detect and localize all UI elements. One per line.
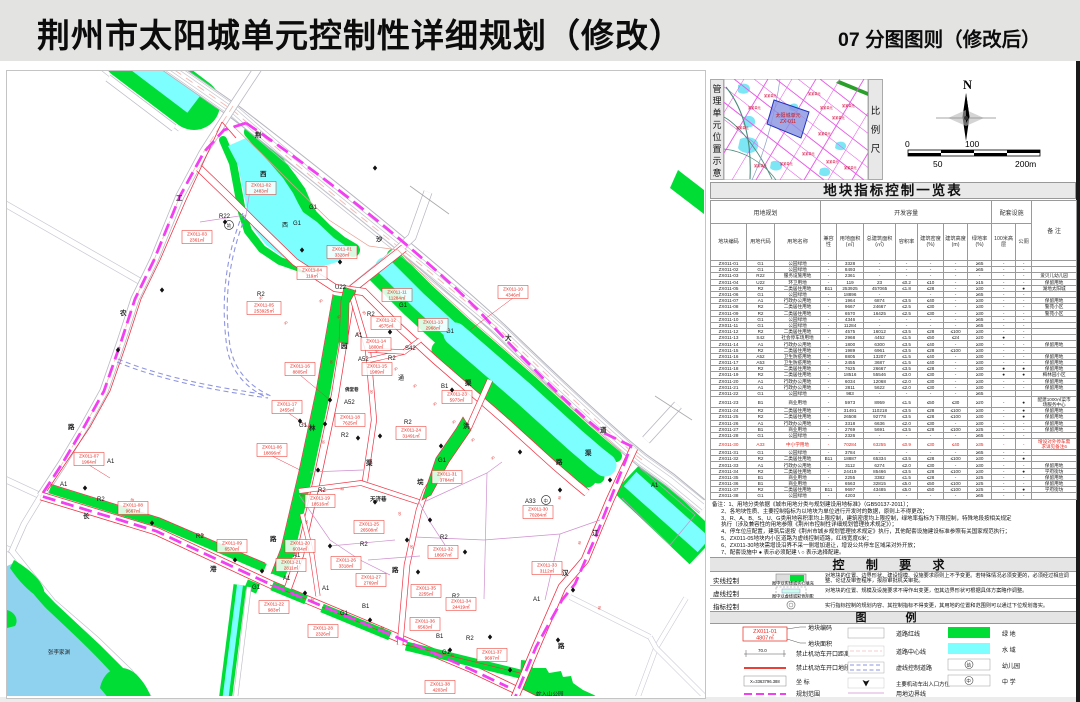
svg-text:9667㎡: 9667㎡	[126, 508, 141, 514]
svg-text:4346㎡: 4346㎡	[506, 292, 521, 298]
svg-text:26508㎡: 26508㎡	[360, 527, 378, 533]
svg-text:A1: A1	[107, 459, 115, 465]
svg-text:1800㎡: 1800㎡	[369, 344, 384, 350]
svg-text:ZX011-09: ZX011-09	[222, 540, 242, 545]
svg-text:R22: R22	[219, 214, 231, 220]
svg-text:R2: R2	[466, 636, 474, 642]
svg-text:4575㎡: 4575㎡	[379, 323, 394, 329]
svg-text:某某单元: 某某单元	[820, 105, 834, 110]
svg-text:虚线控制道路: 虚线控制道路	[896, 664, 932, 672]
svg-text:2326㎡: 2326㎡	[316, 631, 331, 637]
svg-text:ZX011-36: ZX011-36	[415, 618, 435, 623]
svg-text:30: 30	[470, 437, 476, 443]
svg-text:G1: G1	[340, 611, 349, 617]
svg-text:道: 道	[600, 425, 607, 434]
svg-text:ZX011-38: ZX011-38	[430, 681, 450, 686]
svg-text:ZX011-05: ZX011-05	[254, 302, 274, 307]
svg-text:ZX011-13: ZX011-13	[423, 319, 443, 324]
svg-text:ZX011-25: ZX011-25	[359, 521, 379, 526]
svg-text:30: 30	[321, 440, 325, 444]
svg-text:R2: R2	[196, 534, 204, 540]
svg-text:11284㎡: 11284㎡	[388, 295, 405, 301]
svg-text:ZX011-17: ZX011-17	[277, 401, 297, 406]
svg-text:ZX011-06: ZX011-06	[262, 444, 282, 449]
svg-text:A52: A52	[344, 400, 355, 406]
svg-text:ZX011-01: ZX011-01	[332, 246, 352, 251]
svg-text:中: 中	[966, 678, 970, 685]
svg-text:2811㎡: 2811㎡	[284, 565, 299, 571]
svg-text:30: 30	[412, 383, 418, 389]
svg-text:70284㎡: 70284㎡	[529, 512, 547, 518]
svg-text:18896㎡: 18896㎡	[263, 450, 281, 456]
svg-text:ZX011-34: ZX011-34	[451, 598, 471, 603]
svg-text:主要机动车出入口方位: 主要机动车出入口方位	[896, 680, 951, 688]
svg-text:ZX011-18: ZX011-18	[340, 414, 360, 419]
svg-text:地块编码: 地块编码	[808, 624, 832, 632]
svg-text:禁止机动车开口地段: 禁止机动车开口地段	[796, 664, 850, 672]
svg-text:长: 长	[83, 511, 90, 520]
svg-text:G1: G1	[252, 585, 261, 591]
svg-text:路: 路	[270, 534, 277, 543]
svg-text:中 学: 中 学	[1002, 678, 1016, 686]
svg-text:用地边界线: 用地边界线	[896, 690, 926, 697]
svg-text:路: 路	[392, 565, 399, 574]
svg-text:渠: 渠	[585, 448, 592, 457]
svg-text:幼: 幼	[227, 222, 232, 229]
svg-text:某某单元: 某某单元	[780, 161, 794, 166]
svg-text:道路红线: 道路红线	[896, 630, 920, 638]
svg-text:西: 西	[260, 170, 267, 178]
svg-text:某某单元: 某某单元	[842, 103, 856, 108]
svg-text:G1: G1	[299, 423, 308, 429]
svg-text:ZX011-23: ZX011-23	[447, 391, 467, 396]
svg-text:渠: 渠	[465, 378, 472, 387]
svg-text:大: 大	[505, 333, 512, 342]
svg-text:ZX011-11: ZX011-11	[387, 289, 407, 294]
svg-text:B1: B1	[362, 604, 370, 610]
svg-text:200m: 200m	[1015, 159, 1036, 169]
svg-text:ZX011-33: ZX011-33	[537, 562, 557, 567]
svg-text:某某单元: 某某单元	[808, 91, 822, 96]
svg-text:道路中心线: 道路中心线	[896, 648, 926, 656]
svg-text:ZX011-35: ZX011-35	[416, 585, 436, 590]
svg-text:0: 0	[905, 139, 910, 149]
svg-text:30: 30	[361, 310, 367, 316]
svg-text:荆: 荆	[255, 130, 262, 139]
svg-text:2361㎡: 2361㎡	[190, 237, 205, 243]
svg-text:6563㎡: 6563㎡	[418, 624, 433, 630]
svg-text:某某单元: 某某单元	[754, 163, 768, 168]
svg-text:U22: U22	[335, 285, 347, 291]
svg-text:禁止机动车开口距离: 禁止机动车开口距离	[796, 650, 850, 658]
svg-text:园: 园	[341, 341, 348, 350]
svg-text:渠: 渠	[366, 458, 373, 467]
svg-text:6570㎡: 6570㎡	[225, 546, 240, 552]
svg-text:G1: G1	[293, 221, 302, 227]
svg-text:A1: A1	[322, 586, 330, 592]
svg-text:3112㎡: 3112㎡	[540, 568, 555, 574]
svg-text:天济巷: 天济巷	[370, 495, 387, 503]
svg-text:30: 30	[318, 298, 324, 304]
svg-text:N: N	[963, 79, 972, 92]
svg-text:某某单元: 某某单元	[826, 159, 840, 164]
svg-text:ZX011-15: ZX011-15	[367, 363, 387, 368]
svg-text:ZX011-10: ZX011-10	[503, 286, 523, 291]
svg-text:G1: G1	[309, 205, 318, 211]
svg-text:3328㎡: 3328㎡	[335, 252, 350, 258]
svg-text:50: 50	[933, 159, 943, 169]
svg-text:林: 林	[309, 423, 316, 432]
svg-text:中: 中	[544, 497, 549, 504]
svg-text:30: 30	[577, 540, 582, 545]
svg-text:幼: 幼	[967, 662, 972, 669]
svg-text:某某单元: 某某单元	[802, 151, 816, 156]
svg-text:30: 30	[393, 366, 399, 372]
svg-text:8805㎡: 8805㎡	[293, 369, 308, 375]
svg-text:30: 30	[397, 511, 402, 516]
svg-text:某某单元: 某某单元	[748, 105, 762, 110]
svg-text:30: 30	[329, 360, 333, 364]
svg-text:ZX011-32: ZX011-32	[433, 546, 453, 551]
svg-text:佛堂巷: 佛堂巷	[344, 386, 359, 393]
svg-text:70.0: 70.0	[758, 648, 767, 653]
svg-text:R2: R2	[388, 356, 396, 362]
svg-text:30: 30	[340, 487, 344, 491]
svg-text:坐 标: 坐 标	[796, 678, 810, 686]
svg-text:ZX011-31: ZX011-31	[437, 471, 457, 476]
svg-text:西: 西	[282, 222, 288, 229]
svg-text:A33: A33	[525, 499, 536, 505]
svg-text:绿 地: 绿 地	[1002, 630, 1016, 638]
svg-text:ZX011-03: ZX011-03	[187, 231, 207, 236]
svg-text:沙: 沙	[376, 235, 383, 243]
svg-text:3318㎡: 3318㎡	[339, 563, 354, 569]
svg-text:某某单元: 某某单元	[764, 93, 778, 98]
svg-text:R2: R2	[341, 433, 349, 439]
svg-text:ZX011-07: ZX011-07	[79, 453, 99, 458]
svg-text:ZX011-01: ZX011-01	[753, 629, 777, 635]
svg-text:31491㎡: 31491㎡	[402, 433, 420, 439]
svg-text:路: 路	[556, 457, 563, 466]
svg-text:港: 港	[210, 564, 217, 573]
svg-text:24419㎡: 24419㎡	[452, 604, 470, 610]
svg-text:某某单元: 某某单元	[832, 115, 846, 120]
svg-text:2769㎡: 2769㎡	[364, 580, 379, 586]
svg-text:某某单元: 某某单元	[736, 125, 750, 130]
svg-text:地块面积: 地块面积	[808, 640, 832, 648]
svg-text:B1: B1	[441, 384, 449, 390]
svg-text:ZX011-19: ZX011-19	[310, 495, 330, 500]
svg-text:G1: G1	[399, 303, 408, 309]
svg-text:1964㎡: 1964㎡	[82, 459, 97, 465]
svg-text:2255㎡: 2255㎡	[419, 591, 434, 597]
svg-text:30: 30	[283, 320, 289, 326]
svg-text:洪: 洪	[463, 421, 470, 430]
svg-text:张李家渊: 张李家渊	[48, 648, 71, 656]
svg-text:ZX011-04: ZX011-04	[302, 267, 322, 272]
svg-text:工: 工	[176, 194, 183, 202]
svg-text:ZX011-22: ZX011-22	[264, 601, 284, 606]
svg-text:119㎡: 119㎡	[306, 273, 318, 279]
svg-text:ZX011-30: ZX011-30	[528, 506, 548, 511]
svg-text:ZX011-12: ZX011-12	[376, 317, 396, 322]
svg-text:A52: A52	[358, 357, 369, 363]
svg-text:ZX011-21: ZX011-21	[281, 559, 301, 564]
svg-text:江: 江	[592, 528, 599, 537]
svg-text:ZX-011: ZX-011	[780, 119, 796, 125]
svg-text:太阳城单元: 太阳城单元	[775, 112, 800, 119]
svg-text:R2: R2	[404, 420, 412, 426]
svg-text:垸: 垸	[417, 477, 424, 486]
svg-text:A1: A1	[533, 597, 541, 603]
svg-text:水 域: 水 域	[1002, 646, 1016, 654]
svg-text:3784㎡: 3784㎡	[440, 477, 455, 483]
svg-text:30: 30	[432, 401, 438, 407]
svg-text:18516㎡: 18516㎡	[311, 501, 329, 507]
svg-text:ZX011-26: ZX011-26	[336, 557, 356, 562]
svg-text:2455㎡: 2455㎡	[280, 407, 295, 413]
svg-text:X=3363796.388: X=3363796.388	[750, 679, 780, 684]
svg-text:ZX011-20: ZX011-20	[290, 540, 310, 545]
svg-text:汉: 汉	[562, 568, 569, 577]
svg-text:30: 30	[451, 419, 457, 425]
svg-text:G1: G1	[438, 458, 447, 464]
svg-text:B1: B1	[436, 634, 444, 640]
svg-text:2968㎡: 2968㎡	[426, 325, 441, 331]
svg-text:7625㎡: 7625㎡	[343, 420, 358, 426]
svg-text:ZX011-02: ZX011-02	[251, 182, 271, 187]
svg-text:R2: R2	[97, 497, 105, 503]
svg-text:1989㎡: 1989㎡	[370, 369, 385, 375]
svg-text:ZX011-24: ZX011-24	[401, 427, 421, 432]
svg-text:253925㎡: 253925㎡	[254, 308, 274, 314]
svg-text:983㎡: 983㎡	[268, 607, 281, 613]
svg-text:6034㎡: 6034㎡	[293, 546, 308, 552]
svg-text:R2: R2	[360, 542, 368, 548]
svg-text:某某单元: 某某单元	[844, 165, 858, 170]
svg-text:A1: A1	[293, 553, 301, 559]
svg-text:路: 路	[68, 422, 75, 431]
svg-text:A1: A1	[60, 482, 68, 488]
svg-text:30: 30	[557, 495, 562, 500]
svg-text:30: 30	[597, 605, 602, 610]
svg-text:30: 30	[490, 455, 496, 461]
svg-text:幼儿园: 幼儿园	[1002, 662, 1020, 670]
svg-text:ZX011-28: ZX011-28	[313, 625, 333, 630]
svg-text:图中以实线或实心填充的用地: 图中以实线或实心填充的用地	[772, 580, 814, 586]
svg-text:ZX011-16: ZX011-16	[290, 363, 310, 368]
svg-text:ZX011-14: ZX011-14	[366, 338, 386, 343]
svg-text:5973㎡: 5973㎡	[450, 397, 465, 403]
svg-text:某某单元: 某某单元	[818, 131, 832, 136]
svg-text:路: 路	[558, 641, 565, 650]
svg-text:农: 农	[119, 308, 127, 317]
svg-text:ZX011-08: ZX011-08	[123, 502, 143, 507]
svg-text:ZX011-37: ZX011-37	[482, 649, 502, 654]
svg-text:S42: S42	[405, 346, 416, 352]
svg-text:9697㎡: 9697㎡	[485, 655, 500, 661]
svg-text:R2: R2	[257, 292, 265, 298]
svg-text:18667㎡: 18667㎡	[434, 552, 452, 558]
svg-text:ZX011-27: ZX011-27	[361, 574, 381, 579]
svg-text:4807㎡: 4807㎡	[756, 634, 774, 642]
svg-text:R2: R2	[440, 535, 448, 541]
svg-text:A1: A1	[651, 483, 659, 489]
svg-text:100: 100	[965, 139, 979, 149]
svg-text:R2: R2	[318, 488, 326, 494]
svg-text:2483㎡: 2483㎡	[254, 188, 269, 194]
svg-text:4203㎡: 4203㎡	[433, 687, 448, 693]
svg-text:通: 通	[398, 374, 404, 382]
svg-text:规划范围: 规划范围	[796, 690, 820, 697]
svg-text:A1: A1	[283, 576, 291, 582]
svg-text:图中以虚线或彩色阴影填充的用地: 图中以虚线或彩色阴影填充的用地	[772, 593, 814, 599]
